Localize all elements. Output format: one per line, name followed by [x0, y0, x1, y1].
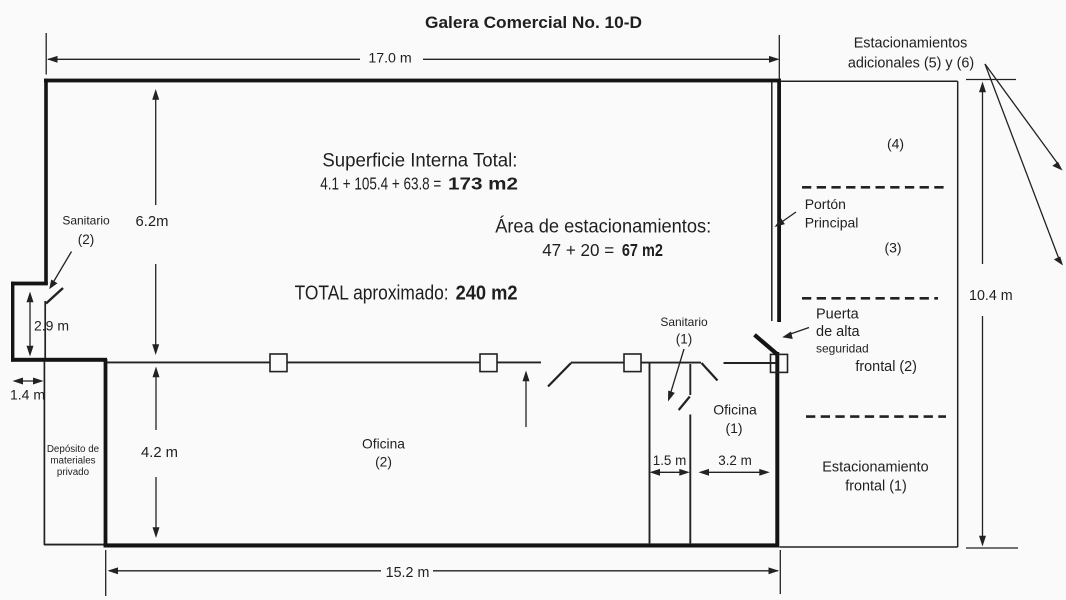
svg-text:2.9 m: 2.9 m — [34, 318, 69, 334]
svg-text:240 m2: 240 m2 — [456, 283, 518, 305]
svg-text:6.2m: 6.2m — [136, 214, 169, 230]
svg-text:Superficie Interna Total:: Superficie Interna Total: — [322, 151, 517, 172]
svg-text:173 m2: 173 m2 — [448, 173, 518, 193]
svg-text:1.4 m: 1.4 m — [10, 387, 45, 403]
svg-text:frontal (2): frontal (2) — [855, 359, 917, 375]
svg-text:Estacionamiento: Estacionamiento — [822, 460, 928, 476]
svg-text:Sanitario: Sanitario — [62, 213, 110, 227]
svg-text:15.2 m: 15.2 m — [386, 565, 430, 581]
svg-text:Oficina: Oficina — [713, 402, 757, 418]
svg-text:67 m2: 67 m2 — [622, 240, 663, 260]
svg-text:de alta: de alta — [816, 324, 860, 340]
svg-text:Oficina: Oficina — [362, 437, 405, 452]
svg-text:Principal: Principal — [805, 215, 859, 231]
svg-text:(2): (2) — [375, 455, 392, 470]
svg-text:adicionales (5) y (6): adicionales (5) y (6) — [848, 56, 974, 72]
svg-text:Depósito de: Depósito de — [47, 444, 100, 455]
svg-text:seguridad: seguridad — [816, 342, 869, 356]
svg-text:frontal (1): frontal (1) — [845, 479, 907, 495]
svg-text:Galera Comercial No. 10-D: Galera Comercial No. 10-D — [425, 13, 642, 32]
svg-text:47 + 20 =: 47 + 20 = — [542, 240, 614, 260]
svg-text:4.2 m: 4.2 m — [141, 445, 178, 461]
svg-text:(1): (1) — [725, 420, 742, 436]
svg-text:Portón: Portón — [805, 196, 846, 212]
svg-text:(2): (2) — [78, 232, 95, 247]
svg-text:17.0 m: 17.0 m — [368, 51, 411, 67]
svg-text:Estacionamientos: Estacionamientos — [854, 36, 968, 52]
svg-text:TOTAL aproximado:: TOTAL aproximado: — [295, 283, 449, 305]
svg-text:Área de estacionamientos:: Área de estacionamientos: — [495, 215, 711, 238]
svg-text:4.1 + 105.4 + 63.8 =: 4.1 + 105.4 + 63.8 = — [320, 173, 441, 193]
svg-text:3.2 m: 3.2 m — [718, 453, 752, 468]
svg-text:(3): (3) — [884, 240, 901, 256]
svg-text:Puerta: Puerta — [816, 307, 860, 323]
svg-text:privado: privado — [57, 467, 90, 478]
svg-text:materiales: materiales — [50, 456, 95, 467]
svg-text:10.4 m: 10.4 m — [969, 288, 1013, 304]
svg-text:1.5 m: 1.5 m — [653, 453, 687, 468]
svg-text:Sanitario: Sanitario — [660, 315, 708, 329]
svg-text:(4): (4) — [887, 136, 904, 152]
svg-text:(1): (1) — [676, 332, 693, 347]
